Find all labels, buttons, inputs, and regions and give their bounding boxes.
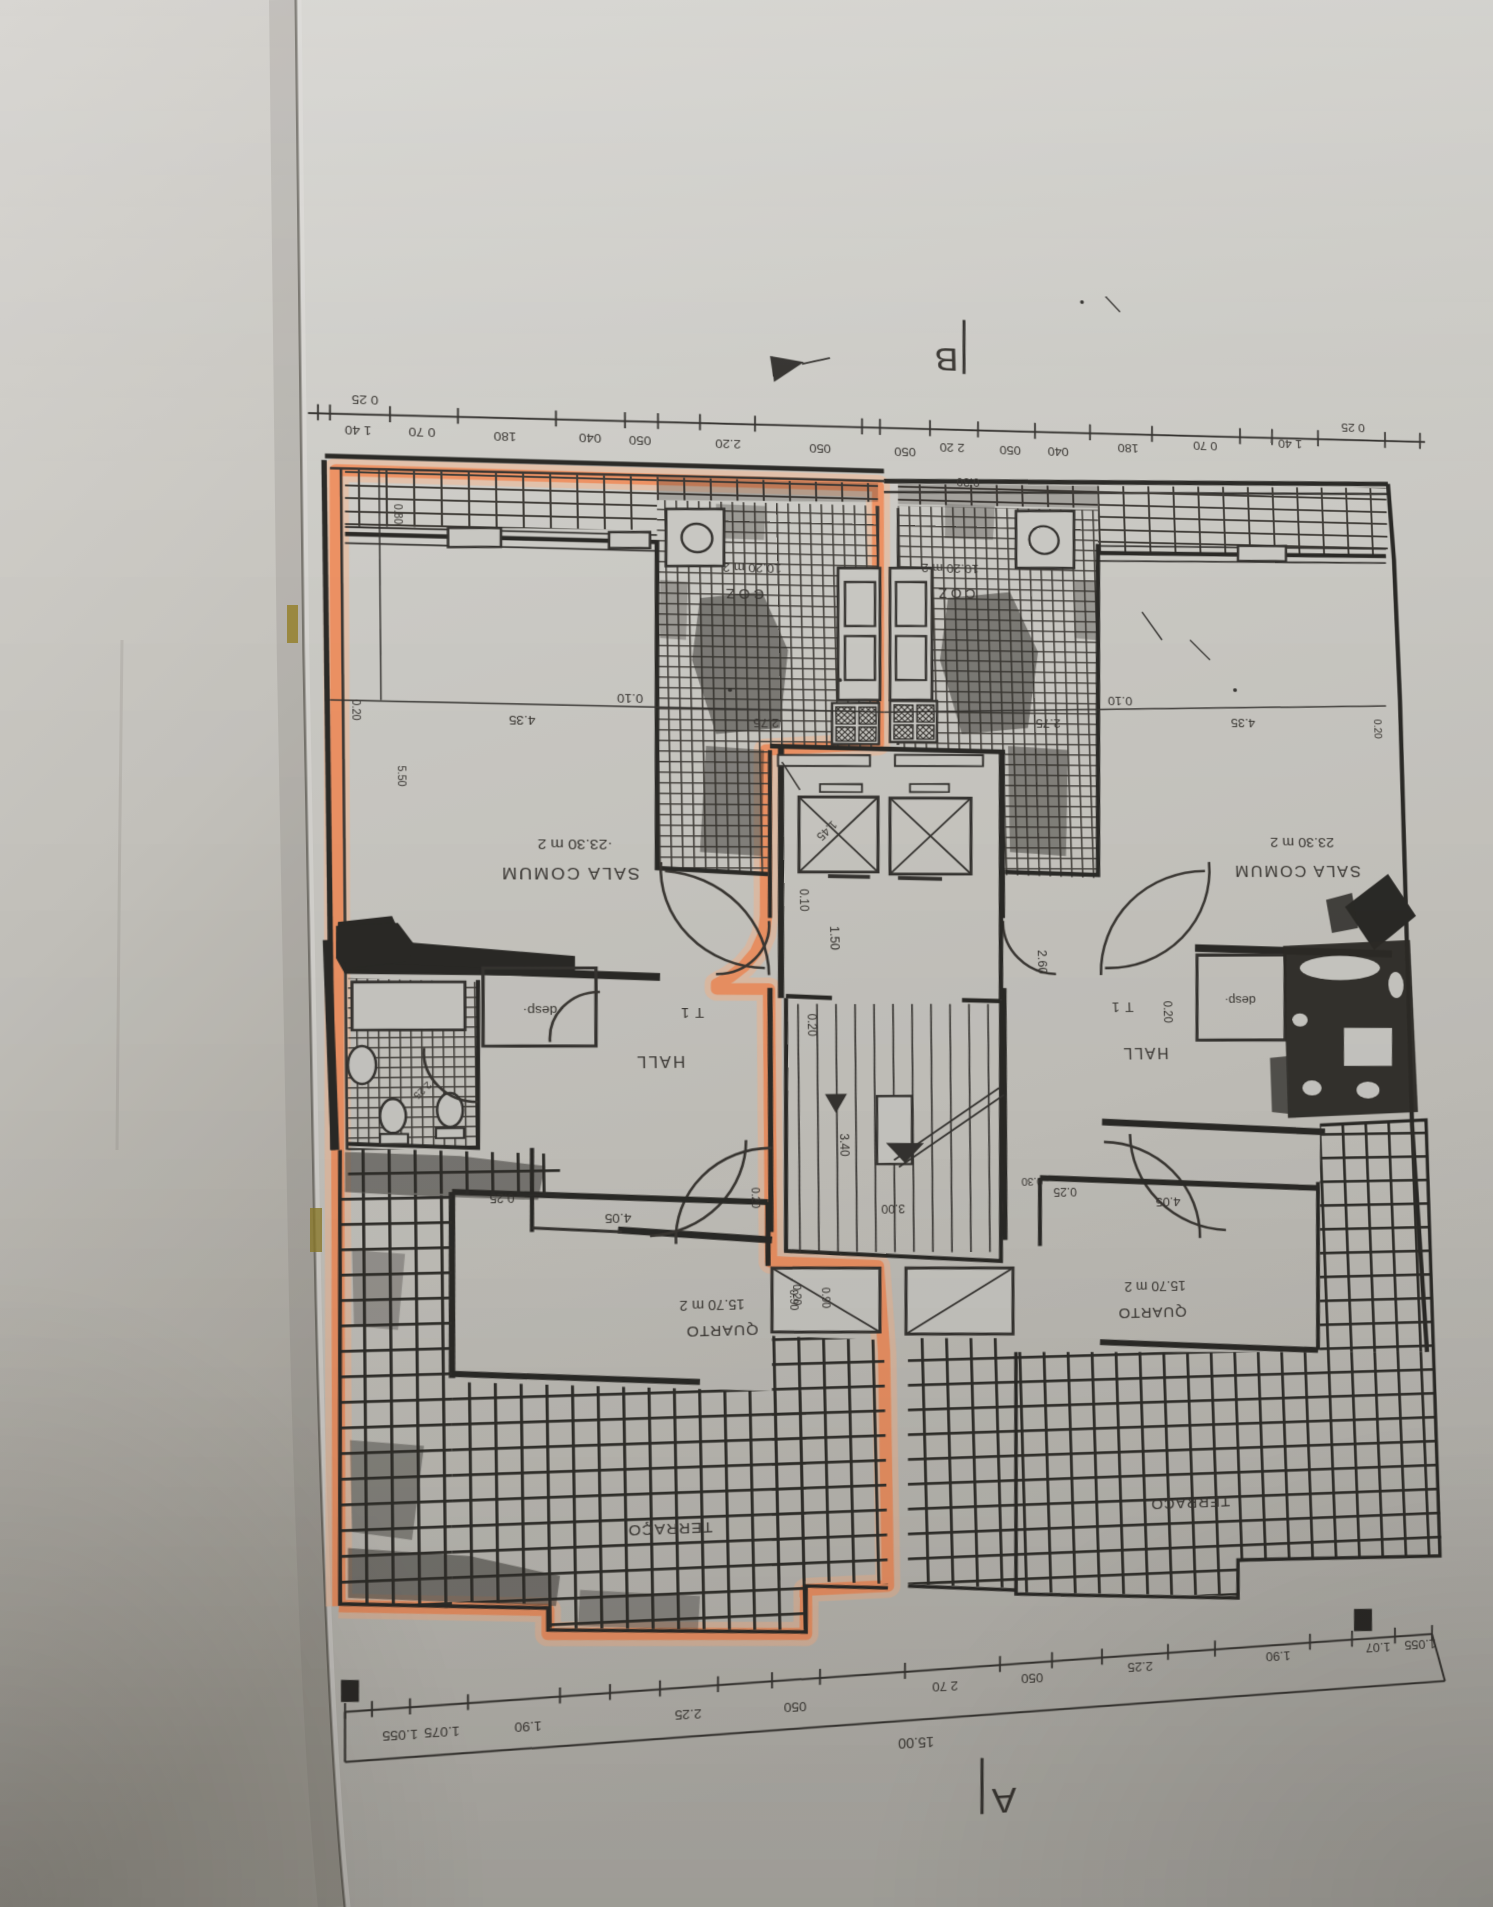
svg-text:0.90: 0.90 [787,1289,800,1310]
svg-text:2.25: 2.25 [1127,1658,1153,1674]
svg-text:0.80: 0.80 [391,504,404,525]
svg-text:1.055: 1.055 [1404,1636,1436,1652]
svg-text:1.90: 1.90 [1265,1649,1290,1665]
svg-text:C O Z: C O Z [938,585,976,600]
svg-text:1 40: 1 40 [1278,437,1302,451]
svg-text:desp·: desp· [1224,993,1256,1007]
svg-text:15.70 m 2: 15.70 m 2 [679,1295,744,1312]
svg-text:2.25: 2.25 [674,1706,701,1722]
svg-text:T 1: T 1 [680,1004,704,1019]
svg-text:0.20: 0.20 [1371,719,1383,739]
svg-text:TERRAÇO: TERRAÇO [627,1518,712,1538]
svg-text:5.50: 5.50 [395,766,408,787]
svg-text:2.60: 2.60 [1035,950,1050,974]
svg-text:0 25: 0 25 [1341,421,1365,435]
svg-text:1.07: 1.07 [1366,1640,1391,1655]
svg-text:3.40: 3.40 [837,1133,852,1156]
svg-text:SALA COMUM: SALA COMUM [1233,862,1361,881]
svg-text:0 70: 0 70 [1193,439,1218,453]
svg-text:050: 050 [894,445,916,459]
svg-text:040: 040 [1047,445,1069,459]
svg-text:050: 050 [999,443,1021,457]
svg-text:0.90: 0.90 [819,1287,832,1308]
svg-text:0.20: 0.20 [749,1187,762,1208]
svg-text:1.075: 1.075 [424,1723,460,1740]
svg-text:1.90: 1.90 [514,1718,542,1735]
svg-text:HALL: HALL [635,1052,685,1070]
svg-text:0.20: 0.20 [1161,1001,1175,1023]
svg-text:T 1: T 1 [1111,998,1134,1013]
svg-text:4.35: 4.35 [1231,716,1256,730]
svg-text:15.00: 15.00 [898,1733,935,1751]
svg-text:2.20: 2.20 [715,437,741,452]
svg-text:050: 050 [629,433,651,448]
svg-text:SALA COMUM: SALA COMUM [500,864,640,883]
svg-text:B: B [934,340,959,378]
svg-text:·23.30 m 2: ·23.30 m 2 [537,836,612,852]
svg-text:0.10: 0.10 [797,889,811,912]
svg-text:10.20 m 2: 10.20 m 2 [921,561,979,576]
svg-text:TERRAÇO: TERRAÇO [1150,1493,1230,1512]
svg-text:desp·: desp· [523,1003,558,1018]
svg-text:2.75: 2.75 [1035,716,1060,730]
svg-text:050: 050 [784,1698,807,1714]
svg-text:4.05: 4.05 [1155,1195,1180,1210]
svg-text:2.75: 2.75 [753,716,779,730]
svg-text:2 20: 2 20 [939,441,964,455]
svg-text:4.35: 4.35 [509,713,536,728]
svg-text:15.70 m 2: 15.70 m 2 [1124,1277,1186,1294]
svg-text:050: 050 [809,441,831,455]
svg-text:050: 050 [1021,1671,1043,1687]
svg-text:1.055: 1.055 [382,1726,418,1743]
svg-text:QUARTO: QUARTO [685,1321,758,1339]
svg-text:4.05: 4.05 [605,1211,632,1226]
svg-text:0.25: 0.25 [1053,1185,1077,1199]
svg-text:040: 040 [579,431,602,446]
svg-text:23.30 m 2: 23.30 m 2 [1270,834,1334,850]
svg-text:180: 180 [1117,441,1138,455]
svg-text:0.20: 0.20 [349,699,362,720]
svg-text:1.45: 1.45 [813,818,840,843]
svg-text:0 25: 0 25 [352,393,379,408]
svg-text:0 70: 0 70 [409,425,436,440]
svg-text:0.10: 0.10 [1108,694,1133,708]
svg-text:0.30: 0.30 [956,475,980,488]
svg-text:A: A [991,1779,1017,1821]
svg-text:1.50: 1.50 [827,926,842,950]
svg-text:10.20 m 2: 10.20 m 2 [723,561,782,576]
svg-text:1 40: 1 40 [345,423,372,438]
svg-text:C O Z: C O Z [726,585,765,601]
svg-text:HALL: HALL [1121,1044,1169,1061]
svg-text:180: 180 [494,429,517,444]
svg-text:3.00: 3.00 [881,1202,905,1216]
svg-text:2 70: 2 70 [932,1678,958,1694]
svg-text:0.10: 0.10 [617,691,643,705]
svg-text:QUARTO: QUARTO [1117,1303,1186,1321]
